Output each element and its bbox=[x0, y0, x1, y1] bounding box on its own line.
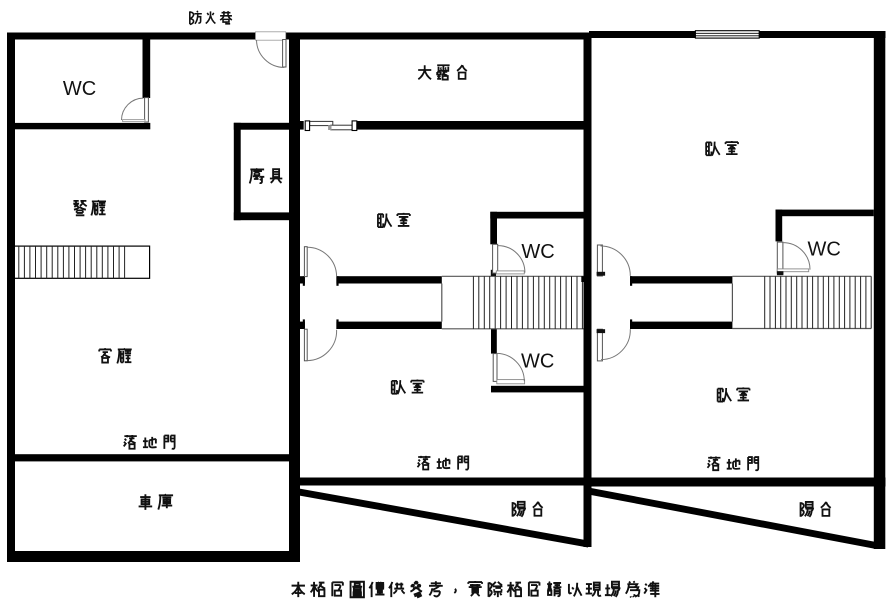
svg-text:WC: WC bbox=[521, 241, 554, 263]
svg-text:WC: WC bbox=[521, 351, 554, 373]
svg-text:WC: WC bbox=[808, 239, 841, 261]
svg-text:WC: WC bbox=[63, 78, 96, 100]
